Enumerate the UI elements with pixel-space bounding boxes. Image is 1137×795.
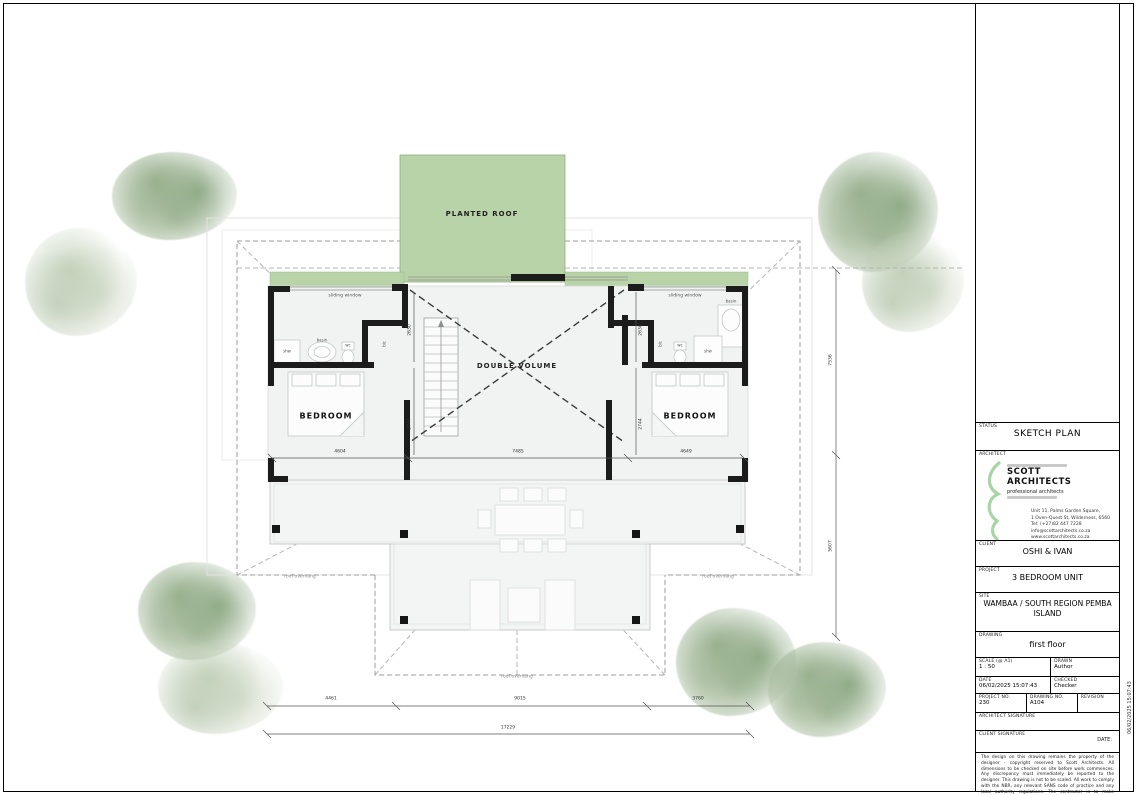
client-signature-section: CLIENT SIGNATURE DATE: xyxy=(976,730,1119,752)
project-value: 3 BEDROOM UNIT xyxy=(979,573,1116,582)
checked-value: Checker xyxy=(1054,683,1116,689)
signature-date-label: DATE: xyxy=(979,737,1116,743)
wc-right-label: wc xyxy=(677,343,682,348)
wc-left-label: wc xyxy=(345,343,350,348)
status-value: SKETCH PLAN xyxy=(979,429,1116,439)
architect-signature-section: ARCHITECT SIGNATURE xyxy=(976,712,1119,730)
dim-internal-2: 7485 xyxy=(512,450,523,455)
scale-value: 1 : 50 xyxy=(979,664,1047,670)
drawing-label: DRAWING xyxy=(979,633,1116,638)
dim-wall-left-lower: 2744 xyxy=(408,418,413,429)
date-value: 06/02/2025 15:07:43 xyxy=(979,683,1047,689)
drawing-section: DRAWING first floor xyxy=(976,631,1119,657)
project-no-value: 230 xyxy=(979,700,1023,706)
disclaimer-text: The design on this drawing remains the p… xyxy=(979,754,1116,795)
revision-label: REVISION xyxy=(1081,695,1116,700)
dim-bottom-total: 17229 xyxy=(501,726,515,731)
dim-bottom-2: 9015 xyxy=(514,697,525,702)
bedroom-left-label: BEDROOM xyxy=(300,412,353,421)
client-value: OSHI & IVAN xyxy=(979,547,1116,556)
bic-right-label: bic xyxy=(658,341,663,347)
sliding-window-left-label: sliding window xyxy=(328,294,361,299)
drawing-sheet: PLANTED ROOF DOUBLE VOLUME BEDROOM BEDRO… xyxy=(0,0,1137,795)
numbers-section: PROJECT NO. 230 DRAWING NO. A104 REVISIO… xyxy=(976,693,1119,712)
shower-right-label: shw xyxy=(704,349,712,354)
firm-address: Unit 11, Palms Garden Square, 1 Oven-Que… xyxy=(1031,509,1110,542)
address-line: Unit 11, Palms Garden Square, xyxy=(1031,509,1110,516)
drawn-value: Author xyxy=(1054,664,1116,670)
side-timestamp: 06/02/2025 15:07:43 xyxy=(1127,681,1133,734)
project-section: PROJECT 3 BEDROOM UNIT xyxy=(976,566,1119,592)
dim-internal-3: 4649 xyxy=(680,450,691,455)
bic-left-label: bic xyxy=(382,341,387,347)
basin-left-label: basin xyxy=(317,338,328,343)
disclaimer-section: The design on this drawing remains the p… xyxy=(976,752,1119,791)
staircase xyxy=(424,318,458,436)
bedroom-right-label: BEDROOM xyxy=(664,412,717,421)
status-section: STATUS SKETCH PLAN xyxy=(976,422,1119,450)
dim-right-lower: 5607 xyxy=(829,540,834,551)
architect-section: ARCHITECT SCOTT ARCHITECTS professional … xyxy=(976,450,1119,540)
dim-wall-right-lower: 2744 xyxy=(639,418,644,429)
double-volume-label: DOUBLE VOLUME xyxy=(477,362,557,370)
firm-identity: SCOTT ARCHITECTS professional architects xyxy=(1007,463,1071,500)
shower-left-label: shw xyxy=(283,349,291,354)
scale-drawn-section: SCALE (@ A1) 1 : 50 DRAWN Author xyxy=(976,657,1119,676)
firm-registration xyxy=(1007,496,1057,499)
roof-overhang-bottom-label: roof overhang xyxy=(501,675,533,680)
drawing-no-value: A104 xyxy=(1030,700,1074,706)
roof-overhang-right-label: roof overhang xyxy=(702,575,734,580)
site-value: WAMBAA / SOUTH REGION PEMBA ISLAND xyxy=(979,599,1116,619)
side-strip: 06/02/2025 15:07:43 xyxy=(1121,4,1134,791)
dim-right-upper: 7536 xyxy=(829,354,834,365)
floor-plan-linework xyxy=(0,0,970,795)
sliding-window-right-label: sliding window xyxy=(668,294,701,299)
site-section: SITE WAMBAA / SOUTH REGION PEMBA ISLAND xyxy=(976,592,1119,631)
firm-name-2: ARCHITECTS xyxy=(1007,478,1071,488)
dim-internal-1: 4604 xyxy=(334,450,345,455)
terrace xyxy=(270,480,745,630)
dim-wall-left-upper: 2630 xyxy=(408,324,413,335)
dim-wall-right-upper: 2630 xyxy=(639,324,644,335)
firm-subtitle: professional architects xyxy=(1007,489,1071,495)
client-section: CLIENT OSHI & IVAN xyxy=(976,540,1119,566)
roof-overhang-left-label: roof overhang xyxy=(284,575,316,580)
title-block: STATUS SKETCH PLAN ARCHITECT SCOTT ARCHI… xyxy=(975,4,1120,791)
planted-roof-label: PLANTED ROOF xyxy=(446,210,519,218)
architect-logo xyxy=(983,461,1007,545)
dim-bottom-1: 4461 xyxy=(325,697,336,702)
dim-bottom-3: 3760 xyxy=(692,697,703,702)
basin-right-label: basin xyxy=(726,299,737,304)
drawing-value: first floor xyxy=(979,640,1116,649)
date-checked-section: DATE 06/02/2025 15:07:43 CHECKED Checker xyxy=(976,676,1119,693)
